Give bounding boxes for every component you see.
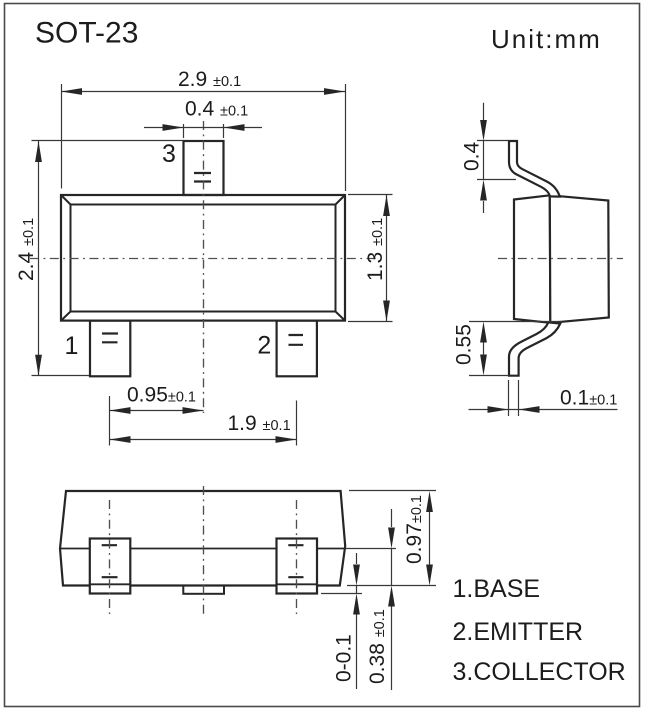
- svg-text:2: 2: [257, 332, 271, 360]
- svg-text:3.COLLECTOR: 3.COLLECTOR: [453, 658, 626, 686]
- svg-text:1: 1: [65, 332, 79, 360]
- svg-text:1.BASE: 1.BASE: [453, 575, 541, 603]
- svg-text:Unit:mm: Unit:mm: [491, 24, 602, 54]
- svg-text:3: 3: [162, 140, 176, 168]
- svg-text:0.4: 0.4: [461, 141, 484, 171]
- svg-text:SOT-23: SOT-23: [35, 17, 138, 50]
- svg-text:2.EMITTER: 2.EMITTER: [453, 618, 584, 646]
- svg-text:0-0.1: 0-0.1: [333, 634, 356, 682]
- svg-text:0.55: 0.55: [453, 324, 476, 365]
